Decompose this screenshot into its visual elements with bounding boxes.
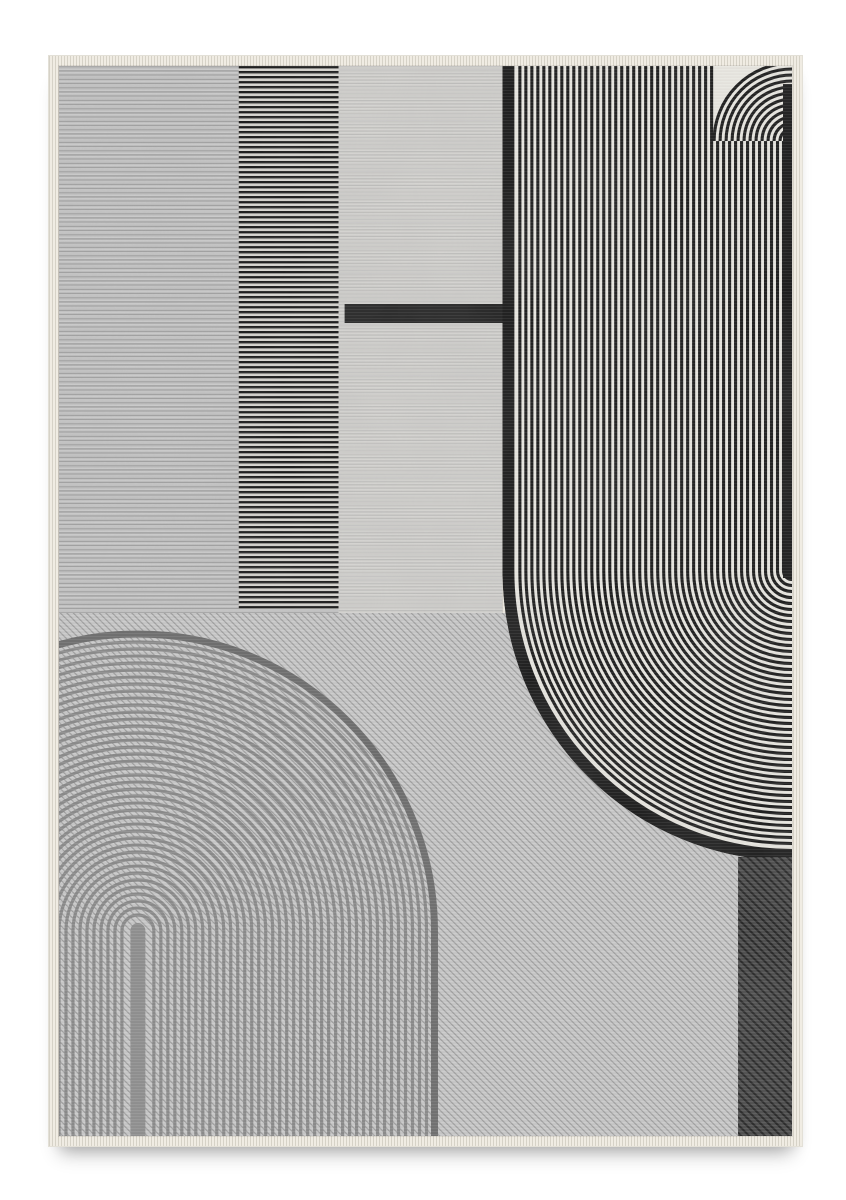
product-photo bbox=[0, 0, 846, 1200]
rug bbox=[48, 55, 803, 1147]
mottle-overlay bbox=[59, 66, 792, 1136]
rug-artwork bbox=[59, 66, 792, 1136]
rug-field bbox=[59, 66, 792, 1136]
